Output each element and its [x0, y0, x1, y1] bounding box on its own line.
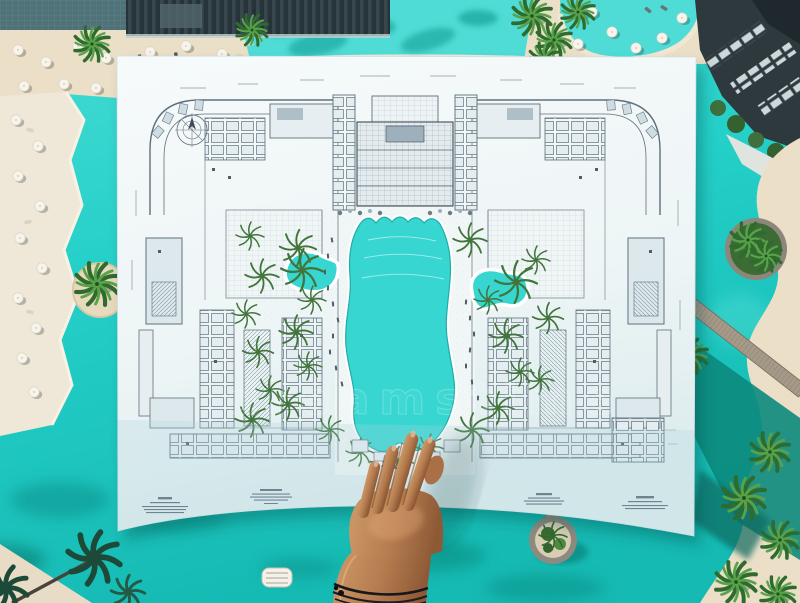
pool-float	[262, 568, 292, 587]
watermark-text: dreamstime	[227, 374, 624, 425]
aerial-resort-photo: dreamstime	[0, 0, 800, 603]
blueprint-sheet	[117, 56, 703, 546]
floorplan-main-building	[333, 95, 477, 215]
